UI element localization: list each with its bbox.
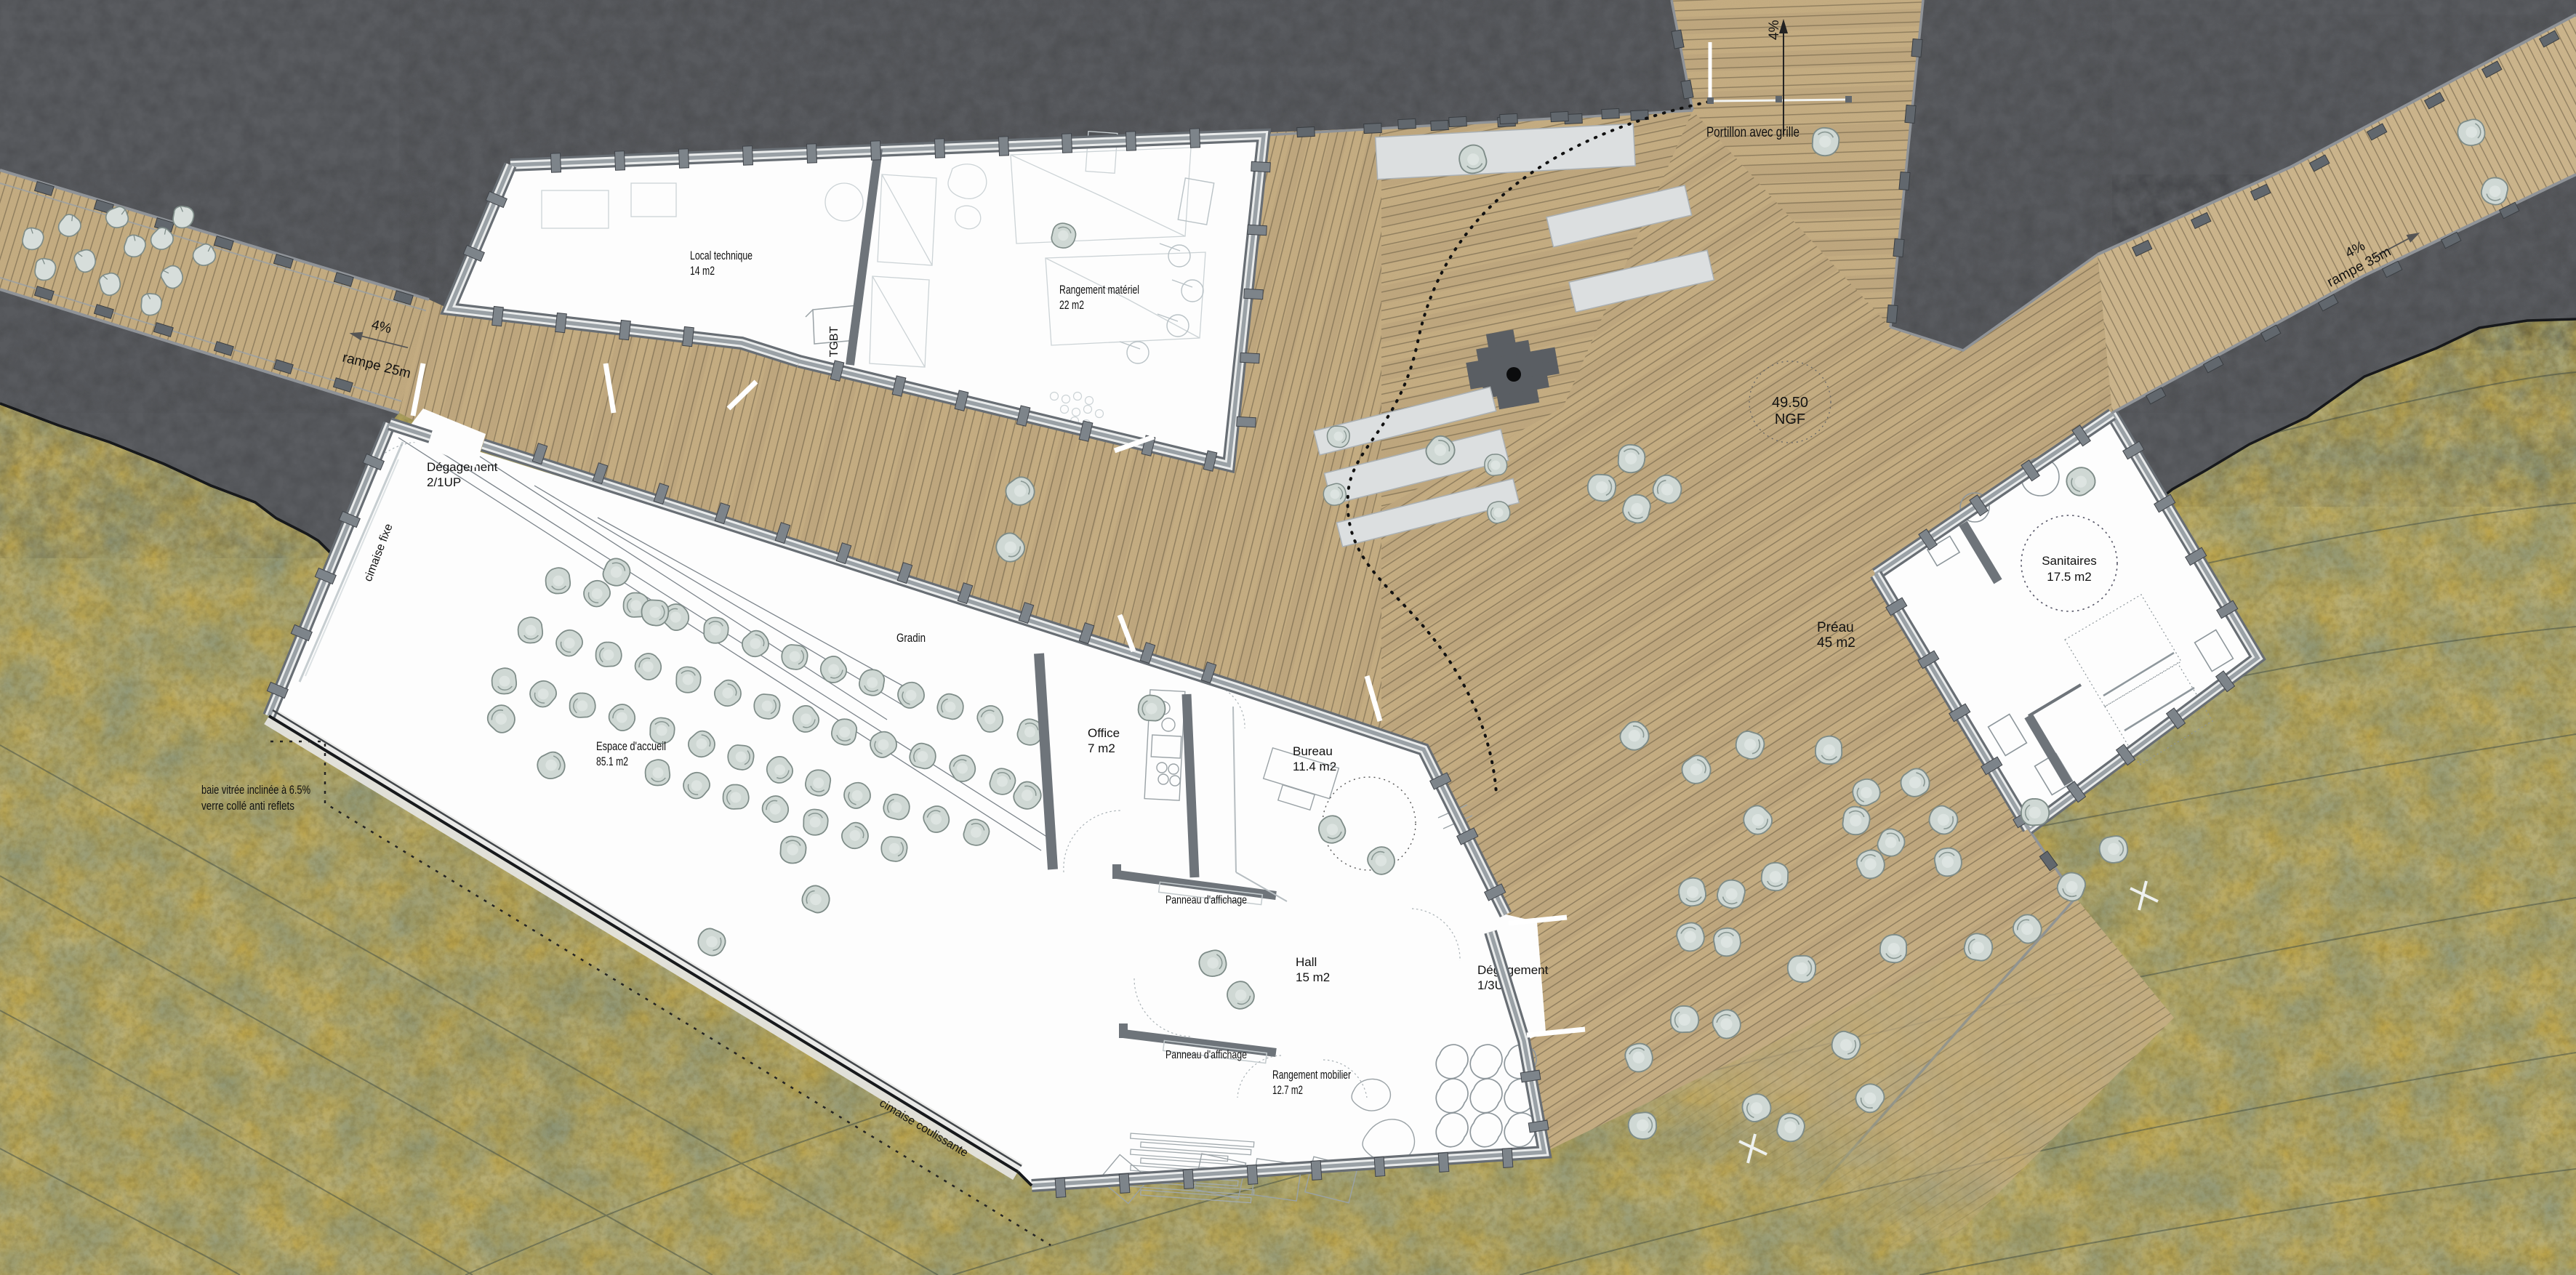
svg-text:Office: Office [1088,726,1120,740]
svg-text:15 m2: 15 m2 [1296,970,1330,984]
svg-text:Rangement mobilier: Rangement mobilier [1272,1068,1351,1082]
svg-text:14 m2: 14 m2 [690,264,715,278]
svg-text:Local technique: Local technique [690,249,753,262]
svg-text:Rangement matériel: Rangement matériel [1059,283,1139,297]
svg-text:11.4 m2: 11.4 m2 [1293,760,1336,773]
svg-text:2/1UP: 2/1UP [427,475,461,489]
svg-text:Bureau: Bureau [1293,744,1333,758]
svg-text:85.1 m2: 85.1 m2 [596,755,628,768]
svg-text:Dégagement: Dégagement [1477,963,1549,977]
svg-text:7 m2: 7 m2 [1088,741,1115,755]
svg-text:Gradin: Gradin [896,631,926,645]
svg-text:Portillon avec grille: Portillon avec grille [1706,125,1799,140]
svg-text:Panneau d'affichage: Panneau d'affichage [1165,894,1247,906]
svg-text:Préau: Préau [1817,620,1854,635]
svg-text:22 m2: 22 m2 [1059,298,1084,312]
svg-text:12.7 m2: 12.7 m2 [1272,1083,1303,1097]
svg-text:45 m2: 45 m2 [1817,635,1855,651]
svg-text:TGBT: TGBT [828,326,840,357]
svg-text:verre collé anti reflets: verre collé anti reflets [201,799,294,813]
svg-text:17.5 m2: 17.5 m2 [2047,570,2091,584]
svg-text:Hall: Hall [1296,955,1317,969]
svg-text:baie vitrée inclinée à 6.5%: baie vitrée inclinée à 6.5% [201,783,310,797]
svg-text:Dégagement: Dégagement [427,460,498,474]
svg-text:4%: 4% [1767,20,1782,40]
svg-text:NGF: NGF [1775,411,1805,427]
svg-text:Panneau d'affichage: Panneau d'affichage [1165,1049,1247,1061]
svg-text:49.50: 49.50 [1772,395,1808,411]
svg-text:Espace d'accueil: Espace d'accueil [596,739,666,753]
svg-text:Sanitaires: Sanitaires [2042,554,2097,568]
